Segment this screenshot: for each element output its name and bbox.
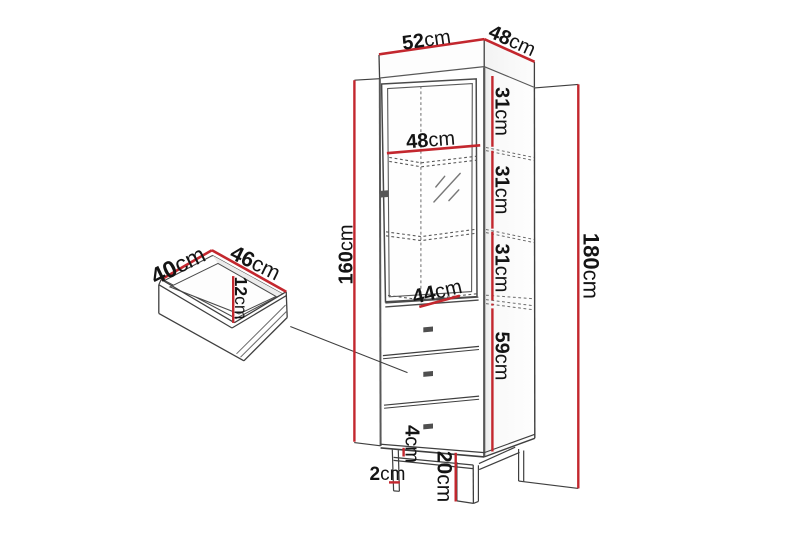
svg-text:31cm: 31cm	[490, 87, 512, 136]
svg-text:31cm: 31cm	[490, 244, 512, 293]
svg-text:2cm: 2cm	[370, 464, 406, 485]
svg-text:59cm: 59cm	[490, 332, 512, 381]
svg-text:4cm: 4cm	[400, 425, 422, 463]
svg-text:20cm: 20cm	[433, 451, 456, 502]
svg-text:180cm: 180cm	[579, 233, 604, 299]
svg-text:12cm: 12cm	[231, 277, 251, 320]
svg-text:31cm: 31cm	[490, 166, 512, 215]
svg-text:160cm: 160cm	[336, 224, 358, 284]
svg-text:48cm: 48cm	[405, 128, 455, 154]
